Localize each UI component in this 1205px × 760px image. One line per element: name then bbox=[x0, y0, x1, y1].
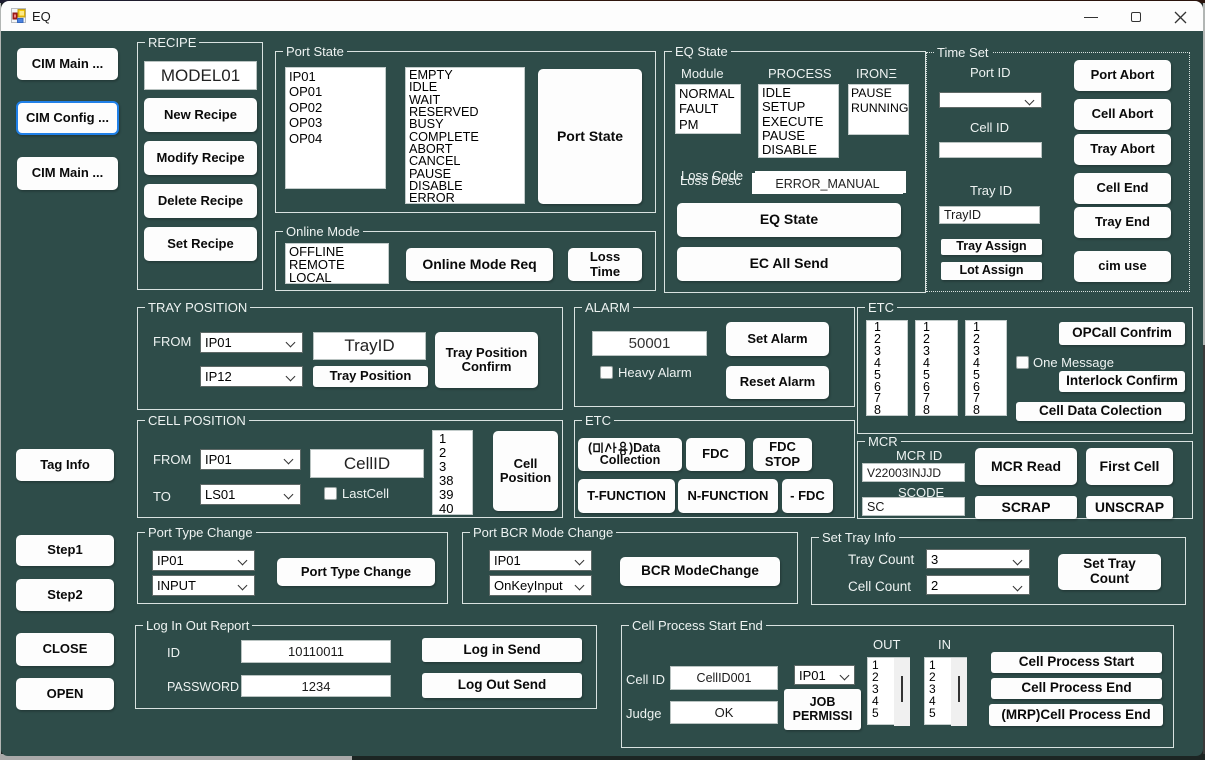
svg-text:(: ( bbox=[588, 441, 593, 455]
